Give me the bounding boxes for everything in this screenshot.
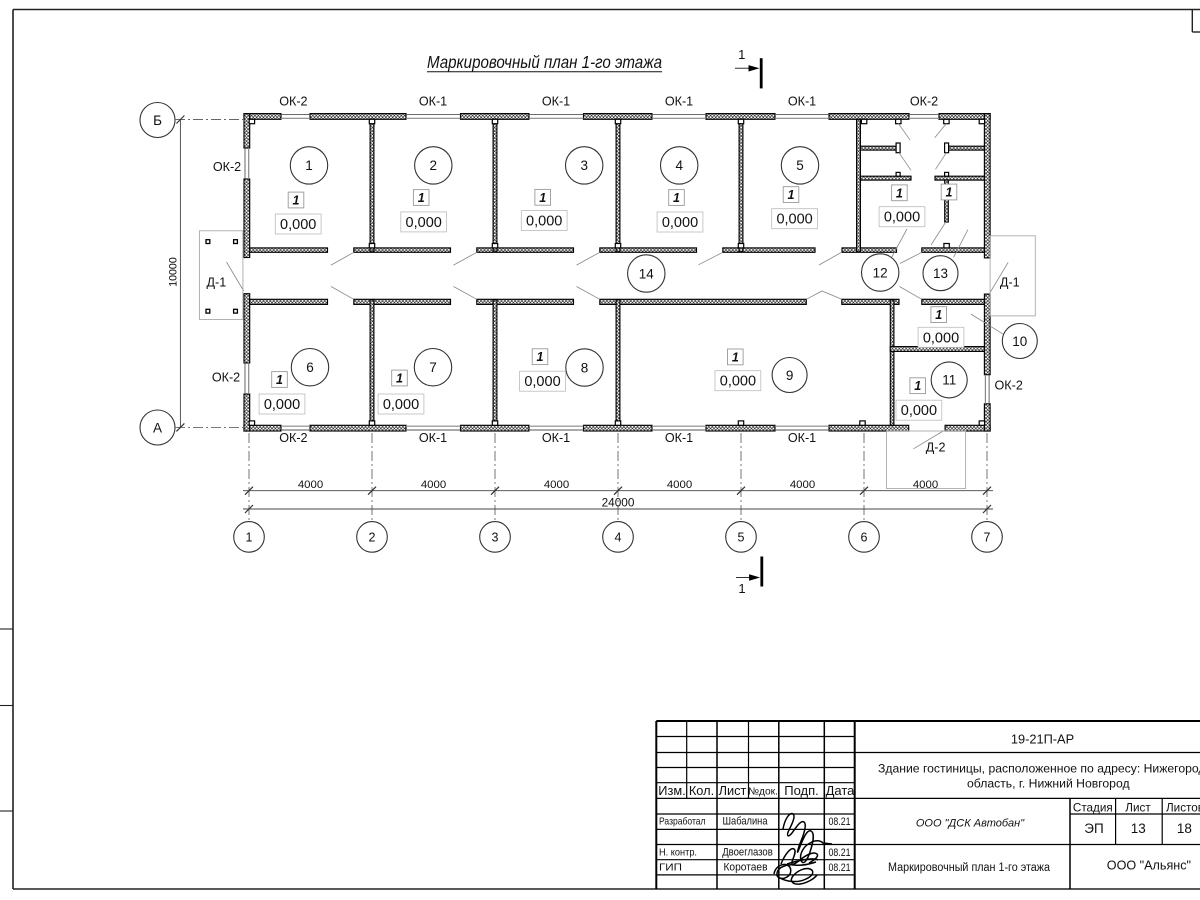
svg-text:Подп.: Подп.	[784, 783, 819, 798]
svg-text:0,000: 0,000	[406, 215, 442, 231]
svg-text:Дата: Дата	[826, 783, 856, 798]
svg-text:Стадия: Стадия	[1073, 802, 1113, 815]
svg-text:Лист: Лист	[1125, 802, 1151, 815]
svg-text:1: 1	[732, 350, 739, 364]
svg-text:0,000: 0,000	[923, 330, 959, 346]
svg-text:1: 1	[673, 191, 680, 205]
svg-text:№док.: №док.	[748, 787, 778, 798]
svg-text:ОК-1: ОК-1	[665, 95, 693, 109]
svg-text:ОК-2: ОК-2	[279, 95, 307, 109]
svg-text:Листов: Листов	[1166, 802, 1200, 815]
svg-text:14: 14	[639, 266, 655, 281]
svg-text:10000: 10000	[168, 257, 180, 287]
svg-text:0,000: 0,000	[901, 403, 937, 419]
svg-text:4000: 4000	[667, 479, 692, 491]
svg-text:Изм.: Изм.	[658, 783, 685, 798]
svg-text:Лист: Лист	[719, 783, 747, 798]
svg-text:1: 1	[914, 379, 921, 393]
svg-text:область, г. Нижний Новгород: область, г. Нижний Новгород	[967, 777, 1130, 791]
svg-text:0,000: 0,000	[776, 212, 812, 228]
svg-text:08.21: 08.21	[829, 862, 851, 874]
svg-text:Кол.: Кол.	[689, 783, 714, 798]
svg-text:1: 1	[537, 350, 544, 364]
svg-text:Маркировочный план 1-го этажа: Маркировочный план 1-го этажа	[427, 52, 662, 72]
svg-text:5: 5	[738, 531, 745, 545]
svg-text:0,000: 0,000	[884, 210, 920, 226]
svg-text:1: 1	[246, 531, 253, 545]
svg-text:ОК-2: ОК-2	[910, 95, 938, 109]
svg-text:1: 1	[935, 308, 942, 322]
svg-text:ЭП: ЭП	[1084, 821, 1103, 836]
svg-text:4000: 4000	[298, 479, 323, 491]
svg-text:1: 1	[418, 191, 425, 205]
svg-text:4: 4	[675, 158, 683, 173]
svg-text:6: 6	[861, 531, 868, 545]
svg-text:Коротаев: Коротаев	[724, 861, 768, 873]
svg-text:Шабалина: Шабалина	[723, 815, 769, 827]
svg-text:08.21: 08.21	[829, 847, 851, 859]
svg-text:9: 9	[786, 368, 794, 383]
svg-text:1: 1	[738, 47, 745, 62]
svg-text:Д-1: Д-1	[1000, 275, 1020, 289]
svg-text:24000: 24000	[602, 496, 635, 510]
svg-text:Здание гостиницы, расположенно: Здание гостиницы, расположенное по адрес…	[878, 762, 1200, 776]
svg-text:Д-1: Д-1	[207, 275, 227, 289]
svg-text:13: 13	[1131, 821, 1146, 836]
svg-text:ГИП: ГИП	[659, 862, 682, 873]
svg-text:4: 4	[615, 531, 622, 545]
svg-text:5: 5	[796, 158, 804, 173]
svg-text:1: 1	[539, 191, 546, 205]
svg-text:12: 12	[873, 265, 888, 280]
svg-text:3: 3	[580, 158, 588, 173]
svg-text:ОК-1: ОК-1	[419, 95, 447, 109]
svg-text:ОК-2: ОК-2	[212, 371, 240, 385]
svg-text:1: 1	[276, 373, 283, 387]
svg-text:1: 1	[396, 372, 403, 386]
svg-text:11: 11	[942, 373, 956, 388]
svg-text:4000: 4000	[544, 479, 569, 491]
svg-text:4000: 4000	[913, 479, 938, 491]
svg-text:08.21: 08.21	[829, 816, 851, 828]
svg-text:ОК-1: ОК-1	[665, 431, 693, 445]
svg-text:ОК-1: ОК-1	[788, 431, 816, 445]
svg-text:Н. контр.: Н. контр.	[659, 848, 697, 859]
svg-text:ОК-1: ОК-1	[419, 431, 447, 445]
svg-text:2: 2	[369, 531, 376, 545]
svg-text:7: 7	[429, 360, 437, 375]
svg-text:1: 1	[305, 158, 313, 173]
svg-text:2: 2	[430, 158, 438, 173]
svg-text:3: 3	[492, 531, 499, 545]
svg-text:0,000: 0,000	[662, 215, 698, 231]
svg-text:Маркировочный план 1-го этажа: Маркировочный план 1-го этажа	[888, 862, 1051, 874]
svg-text:ОК-2: ОК-2	[213, 160, 241, 174]
svg-text:1: 1	[738, 581, 745, 596]
svg-text:19-21П-АР: 19-21П-АР	[1011, 732, 1074, 747]
svg-text:ООО "Альянс": ООО "Альянс"	[1107, 858, 1191, 872]
svg-text:Б: Б	[153, 113, 162, 128]
svg-text:8: 8	[581, 360, 589, 375]
svg-text:ОК-2: ОК-2	[279, 431, 307, 445]
svg-text:1: 1	[293, 194, 300, 208]
svg-text:0,000: 0,000	[524, 374, 560, 390]
svg-text:1: 1	[946, 186, 953, 200]
svg-text:ОК-1: ОК-1	[788, 95, 816, 109]
svg-text:1: 1	[788, 188, 795, 202]
svg-text:4000: 4000	[790, 479, 815, 491]
svg-text:6: 6	[306, 360, 314, 375]
svg-text:0,000: 0,000	[383, 397, 419, 413]
svg-text:18: 18	[1177, 821, 1192, 836]
svg-text:0,000: 0,000	[526, 214, 562, 230]
svg-text:Двоеглазов: Двоеглазов	[722, 847, 773, 859]
svg-text:4000: 4000	[421, 479, 446, 491]
svg-text:0,000: 0,000	[264, 397, 300, 413]
svg-text:1: 1	[896, 186, 903, 200]
svg-text:13: 13	[933, 266, 948, 281]
svg-text:7: 7	[984, 531, 991, 545]
svg-text:10: 10	[1012, 334, 1027, 349]
svg-text:0,000: 0,000	[280, 217, 316, 233]
svg-text:0,000: 0,000	[720, 374, 756, 390]
svg-text:Разработал: Разработал	[659, 815, 706, 827]
svg-text:ООО "ДСК Автобан": ООО "ДСК Автобан"	[916, 818, 1025, 830]
svg-text:ОК-2: ОК-2	[995, 379, 1023, 393]
svg-text:ОК-1: ОК-1	[542, 431, 570, 445]
svg-text:Д-2: Д-2	[926, 441, 946, 455]
svg-text:А: А	[153, 420, 162, 435]
svg-text:ОК-1: ОК-1	[542, 95, 570, 109]
